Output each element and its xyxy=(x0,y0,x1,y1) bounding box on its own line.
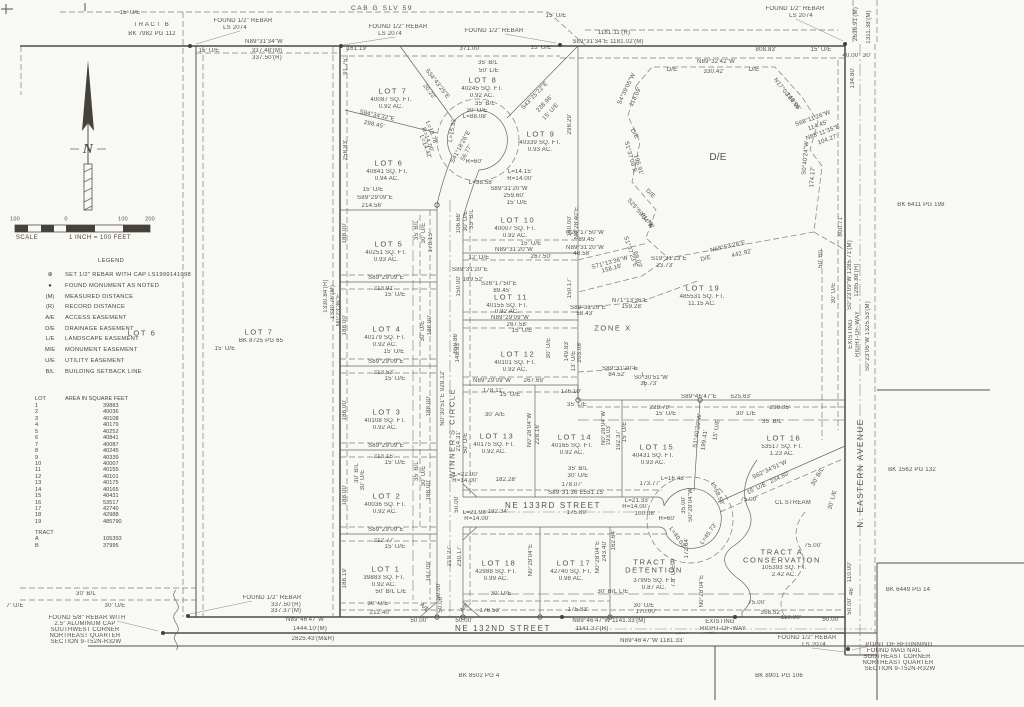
adjacent-parcel-ref: BK 1562 PG 132 xyxy=(888,467,936,473)
legend-item: D/EDRAINAGE EASEMENT xyxy=(40,323,210,334)
adjacent-lot-7-label: LOT 7 xyxy=(245,328,274,336)
map-label: 15' U/E xyxy=(507,200,528,206)
legend-item: (M)MEASURED DISTANCE xyxy=(40,291,210,302)
map-label: 525.63' xyxy=(731,394,752,400)
legend-item-text: FOUND MONUMENT AS NOTED xyxy=(65,283,159,289)
map-label: 30' xyxy=(863,53,871,59)
map-label: 40175 SQ. FT. xyxy=(473,442,514,448)
map-label: 188.00' xyxy=(342,315,348,336)
map-label: 149.83' xyxy=(564,341,570,362)
map-label: 0.92 AC. xyxy=(372,582,397,588)
map-label: S89°29'09"E xyxy=(368,359,404,365)
map-label: 243.40' xyxy=(602,541,608,562)
map-label: 110.00' xyxy=(781,615,801,621)
eastern-avenue-label: N. EASTERN AVENUE xyxy=(857,418,865,527)
lot-table-row: B37995 xyxy=(35,543,175,549)
map-label: 75.00' xyxy=(740,497,757,503)
map-label: 188.00' xyxy=(426,480,432,501)
map-label: 40165 SQ. FT. xyxy=(551,443,592,449)
legend-item-key: B/L xyxy=(40,369,60,375)
map-label: 188.19' xyxy=(342,568,348,589)
map-label: S89°29'09"E xyxy=(368,443,404,449)
legend-item-text: MEASURED DISTANCE xyxy=(65,294,133,300)
legend-item: ●FOUND MONUMENT AS NOTED xyxy=(40,281,210,292)
map-label: 0.92 AC. xyxy=(373,425,398,431)
map-label: 15' U/E xyxy=(120,10,141,16)
map-label: S89°29'09"E xyxy=(368,527,404,533)
map-label: 35' B/L xyxy=(475,101,495,107)
map-label: 267.69' xyxy=(524,378,545,384)
map-label: 150.00' xyxy=(456,276,462,297)
legend-title: LEGEND xyxy=(98,258,210,264)
map-label: 15' U/E xyxy=(385,292,406,298)
map-label: 35' B/L xyxy=(414,220,420,240)
map-label: 0.87 AC. xyxy=(642,585,667,591)
map-label: 2825.43'(M&R) xyxy=(292,636,335,642)
legend-item-text: RECORD DISTANCE xyxy=(65,304,125,310)
lot-10-label: LOT 10 xyxy=(501,216,535,224)
scale-caption-ratio: 1 INCH = 100 FEET xyxy=(69,235,131,241)
map-label: 188.00' xyxy=(426,396,432,417)
map-label: S89°29'09"E xyxy=(368,275,404,281)
map-label: 50.00' xyxy=(847,597,853,614)
map-label: N89°46'47"W 1181.33' xyxy=(620,638,684,644)
lot-12-label: LOT 12 xyxy=(501,350,535,358)
map-label: 0.93 AC. xyxy=(374,257,399,263)
legend-item: U/EUTILITY EASEMENT xyxy=(40,356,210,367)
lot-14-label: LOT 14 xyxy=(558,433,592,441)
map-label: 485531 SQ. FT. xyxy=(680,294,725,300)
map-label: 42988 SQ. FT. xyxy=(475,569,516,575)
map-label: 15' U/E xyxy=(199,48,220,54)
map-label: 178.07' xyxy=(562,482,583,488)
legend-item-key: ● xyxy=(40,283,60,289)
map-label: 161.19' xyxy=(347,46,368,52)
map-label: 214.31' xyxy=(456,431,462,452)
zone-x-label: ZONE X xyxy=(594,324,632,332)
map-label: 40339 SQ. FT. xyxy=(519,140,560,146)
map-label: EXISTING xyxy=(705,619,735,625)
map-label: 176.53' xyxy=(480,608,501,614)
map-label: N0°28'04"E xyxy=(699,575,705,608)
legend-item: ⊕SET 1/2" REBAR WITH CAP LS1999141098 xyxy=(40,270,210,281)
map-label: 0.92 AC. xyxy=(482,449,507,455)
map-label: LS 2074 xyxy=(378,31,402,37)
map-label: 50.00' xyxy=(822,617,839,623)
lot-number: 19 xyxy=(35,519,65,525)
legend-item-text: ACCESS EASEMENT xyxy=(65,315,127,321)
legend-item: M/EMONUMENT EASEMENT xyxy=(40,345,210,356)
ne-133rd-street-label: NE 133RD STREET xyxy=(505,502,601,510)
map-label: R=14.00' xyxy=(622,504,648,510)
map-label: 30' U/E xyxy=(568,473,589,479)
map-label: 371.00' xyxy=(460,46,481,52)
map-label: R=60' xyxy=(659,516,676,522)
legend-item-key: ⊕ xyxy=(40,272,60,278)
lot-7-label: LOT 7 xyxy=(379,87,408,95)
legend-item-text: UTILITY EASEMENT xyxy=(65,358,125,364)
map-label: 7.5' U/E xyxy=(671,565,677,588)
map-label: RIGHT-OF-WAY xyxy=(855,311,861,357)
map-label: CL STREAM xyxy=(775,500,811,506)
map-label: L=88.08' xyxy=(463,114,488,120)
map-label: 298.85' xyxy=(770,405,791,411)
lot-17-label: LOT 17 xyxy=(557,559,591,567)
map-label: 1181.11'(R) xyxy=(598,30,630,36)
map-label: S89°31'20"W xyxy=(490,186,528,192)
lot-area-value: 485790 xyxy=(103,519,122,525)
map-label: N0°28'04"W xyxy=(527,413,533,447)
map-label: R=14.00' xyxy=(464,516,490,522)
scale-bar-icon xyxy=(15,225,150,232)
map-label: BK 8725 PG 65 xyxy=(239,338,283,344)
map-label: 30' B/L L/E xyxy=(597,589,628,595)
map-label: 258.83' xyxy=(343,140,349,161)
map-label: 35' B/L xyxy=(478,60,498,66)
map-label: 188.00' xyxy=(427,315,433,336)
map-label: 0.92 AC. xyxy=(470,93,495,99)
map-label: R=14.00' xyxy=(452,478,478,484)
map-label: 50' B/L xyxy=(818,248,824,268)
map-label: 173.77' xyxy=(640,481,661,487)
map-label: N0°30'51"E 928.12' xyxy=(440,370,446,425)
map-label: S0°28'04"W xyxy=(688,488,694,522)
map-label: 267.50' xyxy=(531,254,552,260)
map-label: LS 2074 xyxy=(223,25,247,31)
map-label: S89°29'09"E xyxy=(357,195,393,201)
map-label: S0°23'09"W 1285.71'(M) xyxy=(847,240,853,310)
map-label: 15' U/E xyxy=(546,13,567,19)
map-label: D/E xyxy=(667,67,678,73)
legend-item-text: LANDSCAPE EASEMENT xyxy=(65,336,139,342)
map-label: 176.10' xyxy=(561,389,582,395)
legend-item: (R)RECORD DISTANCE xyxy=(40,302,210,313)
map-label: 42740 SQ. FT. xyxy=(550,569,591,575)
legend: LEGEND ⊕SET 1/2" REBAR WITH CAP LS199914… xyxy=(40,258,210,377)
map-label: N89°29'09"W xyxy=(473,378,511,384)
map-label: 15' U/E xyxy=(811,47,832,53)
map-label: 106.66' xyxy=(456,213,462,234)
map-label: 40.00' xyxy=(842,53,859,59)
map-label: 162.64' xyxy=(611,530,617,551)
map-label: 50.00' xyxy=(454,495,460,512)
map-label: 0.99 AC. xyxy=(484,576,509,582)
map-label: 39883 SQ. FT. xyxy=(363,575,404,581)
scale-caption-label: SCALE xyxy=(16,235,38,241)
map-label: 35' L/E xyxy=(567,402,587,408)
map-label: 187.09' xyxy=(426,561,432,582)
map-label: 172.64' xyxy=(684,538,690,559)
map-label: 1285.88'(R) xyxy=(854,263,860,296)
lot-8-label: LOT 8 xyxy=(469,76,498,84)
map-label: FOUND 1/2" REBAR xyxy=(765,6,824,12)
map-label: 40101 SQ. FT. xyxy=(494,360,535,366)
map-label: 15' U/E xyxy=(385,376,406,382)
adjacent-parcel-ref: BK 6411 PG 198 xyxy=(897,202,944,208)
map-label: 230.17' xyxy=(457,546,463,567)
adjacent-parcel-ref: BK 6449 PG 14 xyxy=(886,587,930,593)
map-label: 75.00' xyxy=(748,600,765,606)
map-label: 175.83' xyxy=(568,607,589,613)
winners-circle-label: WINNER'S CIRCLE xyxy=(448,388,456,478)
map-label: 30' U/E xyxy=(420,321,426,342)
legend-item-key: (R) xyxy=(40,304,60,310)
map-label: 551.15' xyxy=(584,490,605,496)
legend-items: ⊕SET 1/2" REBAR WITH CAP LS1999141098●FO… xyxy=(40,270,210,377)
map-label: N89°32'42"W xyxy=(697,59,735,65)
map-label: 1444.10'(M) xyxy=(293,626,327,632)
map-label: 0.92 AC. xyxy=(373,509,398,515)
map-label: 50' U/E xyxy=(463,433,469,454)
map-label: S89°31'36"E xyxy=(548,490,584,496)
scale-tick-label: 200 xyxy=(145,217,155,223)
map-label: 91.75' xyxy=(343,57,349,74)
ne-132nd-street-label: NE 132ND STREET xyxy=(455,625,551,633)
adjacent-parcel-ref: BK 8901 PG 106 xyxy=(755,673,803,679)
lot-5-label: LOT 5 xyxy=(375,240,404,248)
map-label: 53517 SQ. FT. xyxy=(761,444,802,450)
map-label: 0.92 AC. xyxy=(379,104,404,110)
map-label: N89°46'47"W xyxy=(286,617,324,623)
legend-item-text: MONUMENT EASEMENT xyxy=(65,347,138,353)
map-label: 58.43' xyxy=(576,311,593,317)
map-label: S89°31'34"E 1181.02'(M) xyxy=(572,39,643,45)
legend-item-key: M/E xyxy=(40,347,60,353)
map-label: 15' U/E xyxy=(512,328,533,334)
map-label: 15' U/E xyxy=(385,544,406,550)
map-label: 800.71' xyxy=(838,216,844,237)
map-label: S19°31'23"E xyxy=(651,256,687,262)
map-label: 105393 SQ. FT. xyxy=(762,565,807,571)
adjacent-parcel-ref: BK 8502 PG 4 xyxy=(459,673,500,679)
map-label: 188.00' xyxy=(342,485,348,506)
map-label: 0.93 AC. xyxy=(528,147,553,153)
map-label: 1311.38'(M) xyxy=(866,10,872,44)
legend-item-key: (M) xyxy=(40,294,60,300)
map-label: 15' U/E xyxy=(215,346,236,352)
map-label: RIGHT-OF-WAY xyxy=(700,626,746,632)
map-label: 337.48'(M) xyxy=(252,48,283,54)
map-label: 46' xyxy=(849,587,855,595)
legend-item-text: BUILDING SETBACK LINE xyxy=(65,369,142,375)
lot-area-value: 37995 xyxy=(103,543,119,549)
lot-area-table: LOT AREA IN SQUARE FEET 1398832400363401… xyxy=(35,396,175,549)
map-label: 203.08' xyxy=(577,342,583,363)
map-label: N89°46'47"W 1141.33'(M) xyxy=(572,618,645,624)
map-label: N0°23'36"E xyxy=(336,294,342,327)
lot-table-tract-rows: A105393B37995 xyxy=(35,536,175,549)
scan-corner-marks xyxy=(1,3,85,14)
map-label: 178.15' xyxy=(428,232,434,253)
map-label: 188.00' xyxy=(342,400,348,421)
map-label: N0°28'04"E xyxy=(595,541,601,574)
map-label: S89°31'20"E xyxy=(452,267,488,273)
map-label: 15' U/E xyxy=(385,460,406,466)
map-label: FOUND 1/2" REBAR xyxy=(777,635,836,641)
lot-3-label: LOT 3 xyxy=(373,408,402,416)
map-label: 659.86' xyxy=(453,333,459,354)
map-label: 100.08' xyxy=(635,511,656,517)
map-label: 15' U/E xyxy=(500,392,521,398)
map-label: 0.92 AC. xyxy=(560,450,585,456)
lot-6-label: LOT 6 xyxy=(375,159,404,167)
map-label: 40251 SQ. FT. xyxy=(365,250,406,256)
map-label: 12' D/E xyxy=(469,255,490,261)
lot-15-label: LOT 15 xyxy=(640,443,674,451)
scale-tick-label: 0 xyxy=(64,217,67,223)
map-label: FOUND 1/2" REBAR xyxy=(368,24,427,30)
map-label: 37995 SQ. FT. xyxy=(633,578,674,584)
map-label: 35.73' xyxy=(640,381,657,387)
lot-18-label: LOT 18 xyxy=(482,559,516,567)
map-label: 259.60' xyxy=(504,193,525,199)
lot-number: B xyxy=(35,543,65,549)
legend-item: A/EACCESS EASEMENT xyxy=(40,313,210,324)
map-label: 0.92 AC. xyxy=(373,342,398,348)
lot-table-header-lot: LOT xyxy=(35,396,65,403)
lot-19-label: LOT 19 xyxy=(686,284,720,292)
map-label: 40007 SQ. FT. xyxy=(494,226,535,232)
map-label: 15' U/E xyxy=(531,45,552,51)
map-label: 50' L/E xyxy=(479,68,499,74)
map-label: FOUND 1/2" REBAR xyxy=(464,28,523,34)
map-label: 15' U/E xyxy=(622,422,628,443)
map-label: 182.34' xyxy=(488,509,509,515)
map-label: 2.42 AC. xyxy=(772,572,797,578)
map-label: 50' B/L L/E xyxy=(375,589,406,595)
map-label: 193.03' xyxy=(606,425,612,446)
map-label: 110.00' xyxy=(847,562,853,582)
map-label: 40431 SQ. FT. xyxy=(632,453,673,459)
map-label: 23.73' xyxy=(656,263,673,269)
map-label: 1330.84'(R) xyxy=(323,279,329,312)
map-label: 0.98 AC. xyxy=(559,576,584,582)
map-label: 212.40' xyxy=(370,610,391,616)
map-label: L=16.43' xyxy=(661,476,686,482)
lot-4-label: LOT 4 xyxy=(373,325,402,333)
map-label: 337.50'(R) xyxy=(252,55,282,61)
map-label: 358.52' xyxy=(761,610,782,616)
map-label: 0.92 AC. xyxy=(503,233,528,239)
map-label: 40245 SQ. FT. xyxy=(461,86,502,92)
map-label: 0.92 AC. xyxy=(503,367,528,373)
map-label: S26°17'50"E xyxy=(481,281,517,287)
map-label: 188.00' xyxy=(342,223,348,244)
legend-item-key: A/E xyxy=(40,315,60,321)
map-label: 330.42' xyxy=(704,69,725,75)
map-label: S0°23'06"W 1325.53'(M) xyxy=(865,301,871,371)
north-arrow-icon xyxy=(70,60,106,210)
lot-13-label: LOT 13 xyxy=(480,432,514,440)
map-label: 337.37'(M) xyxy=(271,608,302,614)
map-label: S89°46'47"E xyxy=(681,394,717,400)
map-label: 219.27' xyxy=(447,546,453,567)
lot-11-label: LOT 11 xyxy=(494,293,528,301)
map-label: 1141.37'(R) xyxy=(576,626,609,632)
scale-tick-label: 100 xyxy=(10,217,20,223)
map-label: 2636.91'(M) xyxy=(853,7,859,41)
map-label: 35' B/L xyxy=(414,461,420,481)
map-label: 0.93 AC. xyxy=(641,460,666,466)
map-label: 35.00' xyxy=(681,496,687,513)
map-label: 40108 SQ. FT. xyxy=(364,418,405,424)
lot-2-label: LOT 2 xyxy=(373,492,402,500)
map-label: 150.17' xyxy=(567,278,573,299)
map-label: 40841 SQ. FT. xyxy=(366,169,407,175)
map-label: R=14.00' xyxy=(507,176,533,182)
map-label: 30' B/L xyxy=(76,591,96,597)
map-label: LS 2074 xyxy=(789,13,813,19)
map-label: 11.15 AC. xyxy=(688,301,716,307)
map-label: 30' U/E xyxy=(360,470,366,491)
map-label: BK 7982 PG 112 xyxy=(128,31,175,37)
map-label: 35' B/L xyxy=(762,419,782,425)
map-label: 75.00' xyxy=(804,543,821,549)
map-label: 35' B/L xyxy=(568,466,588,472)
map-label: 84.52' xyxy=(608,372,625,378)
map-label: 30' U/E xyxy=(421,223,427,244)
map-label: 15' U/E xyxy=(363,187,384,193)
map-label: 214.56' xyxy=(362,203,383,209)
map-label: 298.29' xyxy=(567,114,573,135)
lot-table-header-area: AREA IN SQUARE FEET xyxy=(65,396,175,403)
map-label: SECTION 9-T52N-R32W xyxy=(865,666,936,672)
map-label: 175.80' xyxy=(567,510,588,516)
map-label: 40179 SQ. FT. xyxy=(364,335,405,341)
map-label: 30' A/E xyxy=(485,412,505,418)
lot-9-label: LOT 9 xyxy=(527,130,556,138)
map-label: 182.28' xyxy=(496,477,517,483)
map-label: 134.80' xyxy=(850,68,856,89)
north-arrow-label: N xyxy=(83,143,93,157)
map-label: R=60' xyxy=(466,159,483,165)
map-label: 50.00' xyxy=(410,618,427,624)
map-label: 89.45' xyxy=(578,237,595,243)
map-label: N26°17'50"W xyxy=(566,230,604,236)
map-label: 15' U/E xyxy=(384,349,405,355)
map-label: 30' U/E xyxy=(491,591,512,597)
lot-16-label: LOT 16 xyxy=(767,434,801,442)
legend-item-text: DRAINAGE EASEMENT xyxy=(65,326,134,332)
map-label: 159.28' xyxy=(622,304,643,310)
map-label: 15' U/E xyxy=(656,411,677,417)
lot-table-rows: 1398832400363401084401795402526408417400… xyxy=(35,403,175,525)
map-label: 7' U/E xyxy=(6,603,23,609)
map-label: N89°31'20"W xyxy=(495,247,533,253)
legend-item-key: L/E xyxy=(40,336,60,342)
map-label: 30' U/E xyxy=(105,603,126,609)
map-label: 30' U/E xyxy=(546,338,552,359)
map-label: CAB G SLV 59 xyxy=(351,6,413,13)
scale-tick-label: 100 xyxy=(118,217,128,223)
map-label: 48.58' xyxy=(573,251,590,257)
map-label: N89°29'09"W xyxy=(491,315,529,321)
map-label: 1.23 AC. xyxy=(770,451,795,457)
map-label: 35' B/L xyxy=(469,209,475,229)
map-label: 228.16' xyxy=(535,424,541,445)
legend-item-key: U/E xyxy=(40,358,60,364)
legend-item-key: D/E xyxy=(40,326,60,332)
map-label: LS 2074 xyxy=(802,642,826,648)
legend-item: B/LBUILDING SETBACK LINE xyxy=(40,366,210,377)
lot-1-label: LOT 1 xyxy=(372,565,401,573)
map-label: N0°28'04"E xyxy=(528,544,534,577)
legend-item-text: SET 1/2" REBAR WITH CAP LS1999141098 xyxy=(65,272,191,278)
drainage-easement-label: D/E xyxy=(709,153,726,163)
map-label: 808.83' xyxy=(756,47,777,53)
map-label: 0.94 AC. xyxy=(375,176,400,182)
plat-map-canvas: NCAB G SLV 5915' U/ETRACT BBK 7982 PG 11… xyxy=(0,0,1024,707)
